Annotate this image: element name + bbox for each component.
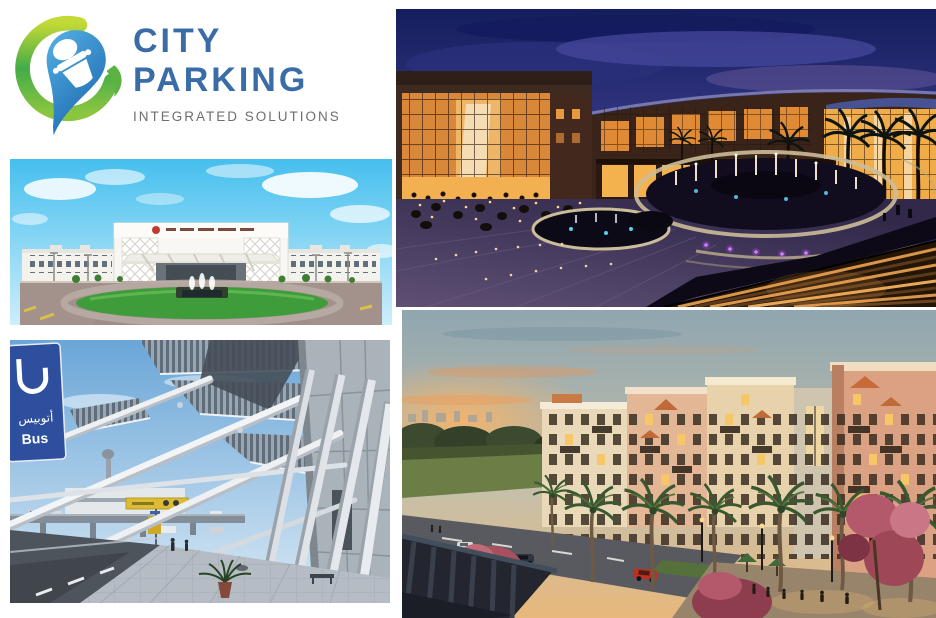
photo-mall-courtyard <box>396 9 936 307</box>
right-wing-windows <box>290 255 376 273</box>
bus-sign: أتوبيس Bus <box>10 343 66 462</box>
small-pond <box>533 209 673 249</box>
brand-name-line2: PARKING <box>133 61 341 100</box>
brand-wordmark: CITY PARKING INTEGRATED SOLUTIONS <box>133 22 341 124</box>
photo-hospital-building <box>10 159 392 325</box>
bus-sign-english-label: Bus <box>21 430 48 447</box>
brand-tagline: INTEGRATED SOLUTIONS <box>133 109 341 124</box>
photo-airport-terminal: أتوبيس Bus <box>10 340 390 603</box>
photo-residential-district <box>402 310 936 618</box>
bus-sign-arabic-label: أتوبيس <box>18 409 54 427</box>
brand-logo: CITY PARKING INTEGRATED SOLUTIONS <box>12 6 342 148</box>
collage-page: CITY PARKING INTEGRATED SOLUTIONS <box>0 0 936 618</box>
left-wing-windows <box>28 255 112 273</box>
upper-windows <box>601 107 811 153</box>
brand-name-line1: CITY <box>133 22 341 61</box>
car-location-pin-icon <box>12 8 130 146</box>
